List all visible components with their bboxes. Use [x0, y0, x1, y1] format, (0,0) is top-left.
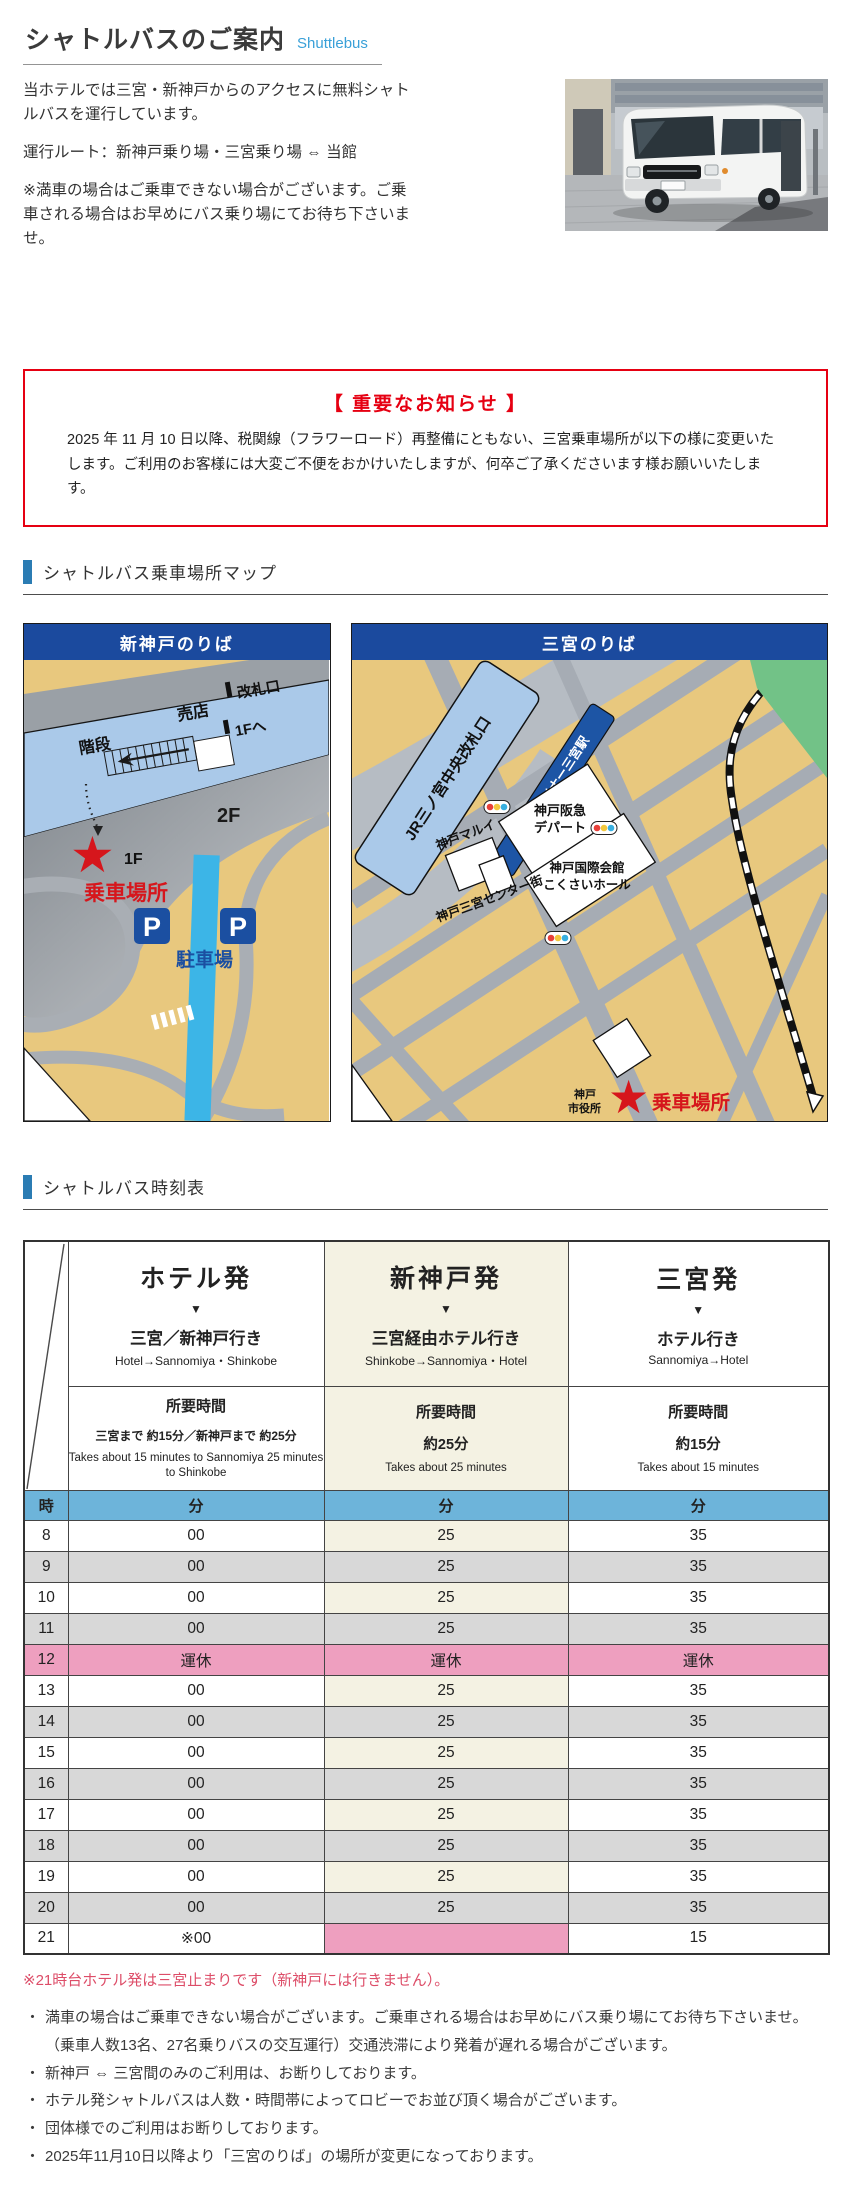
minute-cell: 00: [68, 1706, 324, 1737]
hour-cell: 18: [24, 1830, 68, 1861]
minute-cell: 00: [68, 1799, 324, 1830]
minute-header: 分: [68, 1490, 324, 1520]
minute-cell: 35: [568, 1551, 829, 1582]
floor2-label: 2F: [217, 805, 240, 827]
map-sannomiya-drawing: JR三ノ宮中央改札口 ポートライナー三宮駅 神戸マルイ: [352, 660, 827, 1121]
minute-cell: 35: [568, 1737, 829, 1768]
important-notice: 【 重要なお知らせ 】 2025 年 11 月 10 日以降、税関線（フラワーロ…: [23, 369, 828, 527]
map-shinkobe-drawing: 売店 改札口 1Fへ 階段 2F: [24, 660, 329, 1121]
down-arrow-icon: ▼: [569, 1303, 829, 1317]
route-line: 運行ルート：新神戸乗り場・三宮乗り場 ⇔ 当館: [23, 141, 415, 165]
minute-cell: 15: [568, 1923, 829, 1954]
timetable-row: 17002535: [24, 1799, 829, 1830]
intro-section: 当ホテルでは三宮・新神戸からのアクセスに無料シャトルバスを運行しています。 運行…: [23, 79, 828, 265]
column-header-hotel: ホテル発 ▼ 三宮／新神戸行き Hotel→Sannomiya・Shinkobe: [68, 1241, 324, 1386]
svg-text:神戸国際会館: 神戸国際会館: [549, 860, 624, 875]
section-bar-icon: [23, 1175, 32, 1199]
minute-cell: 運休: [568, 1644, 829, 1675]
minute-cell: [324, 1923, 568, 1954]
minute-cell: 25: [324, 1768, 568, 1799]
section-header-map: シャトルバス乗車場所マップ: [23, 559, 828, 595]
hour-header: 時: [24, 1490, 68, 1520]
timetable-row: 16002535: [24, 1768, 829, 1799]
down-arrow-icon: ▼: [69, 1302, 324, 1316]
hour-cell: 21: [24, 1923, 68, 1954]
minute-cell: 00: [68, 1675, 324, 1706]
notice-body: 2025 年 11 月 10 日以降、税関線（フラワーロード）再整備にともない、…: [59, 428, 792, 502]
map-sannomiya-title: 三宮のりば: [352, 624, 827, 660]
hour-cell: 15: [24, 1737, 68, 1768]
minute-cell: 25: [324, 1706, 568, 1737]
corner-cell: [24, 1241, 68, 1490]
minute-cell: 00: [68, 1582, 324, 1613]
minute-cell: 25: [324, 1892, 568, 1923]
svg-text:神戸阪急: 神戸阪急: [534, 803, 586, 818]
timetable-row: 11002535: [24, 1613, 829, 1644]
section-label: シャトルバス時刻表: [43, 1174, 205, 1199]
boarding-label: 乗車場所: [84, 882, 168, 905]
minute-cell: 35: [568, 1613, 829, 1644]
minute-cell: 00: [68, 1892, 324, 1923]
page-header: シャトルバスのご案内Shuttlebus: [23, 20, 382, 65]
minute-cell: 35: [568, 1830, 829, 1861]
boarding-star-icon: ★: [608, 1071, 649, 1121]
minute-cell: 00: [68, 1768, 324, 1799]
svg-text:デパート: デパート: [534, 820, 586, 835]
hour-cell: 19: [24, 1861, 68, 1892]
timetable-row: 12運休運休運休: [24, 1644, 829, 1675]
minute-cell: 25: [324, 1551, 568, 1582]
timetable-row: 18002535: [24, 1830, 829, 1861]
intro-paragraph: 当ホテルでは三宮・新神戸からのアクセスに無料シャトルバスを運行しています。: [23, 79, 415, 127]
minute-cell: 運休: [324, 1644, 568, 1675]
intro-text: 当ホテルでは三宮・新神戸からのアクセスに無料シャトルバスを運行しています。 運行…: [23, 79, 415, 265]
parking-icon: P: [134, 908, 170, 944]
timetable-row: 9002535: [24, 1551, 829, 1582]
timetable-row: 14002535: [24, 1706, 829, 1737]
timetable-footnote: ※21時台ホテル発は三宮止まりです（新神戸には行きません）。: [23, 1969, 828, 1990]
section-header-timetable: シャトルバス時刻表: [23, 1174, 828, 1210]
floor1-label: 1F: [124, 851, 143, 868]
traffic-signal-icon: [484, 801, 510, 814]
page-title: シャトルバスのご案内: [25, 26, 285, 54]
note-item: 団体様でのご利用はお断りしております。: [23, 2115, 828, 2143]
shuttle-bus-page: シャトルバスのご案内Shuttlebus 当ホテルでは三宮・新神戸からのアクセス…: [0, 0, 842, 2211]
minute-cell: 25: [324, 1799, 568, 1830]
timetable-row: 20002535: [24, 1892, 829, 1923]
minute-cell: 25: [324, 1582, 568, 1613]
minute-header: 分: [568, 1490, 829, 1520]
minute-cell: 25: [324, 1613, 568, 1644]
timetable-row: 13002535: [24, 1675, 829, 1706]
minute-cell: 35: [568, 1861, 829, 1892]
page-title-en: Shuttlebus: [297, 35, 368, 52]
duration-cell-shinkobe: 所要時間 約25分 Takes about 25 minutes: [324, 1386, 568, 1490]
duration-cell-hotel: 所要時間 三宮まで 約15分／新神戸まで 約25分 Takes about 15…: [68, 1386, 324, 1490]
timetable-body: 80025359002535100025351100253512運休運休運休13…: [24, 1520, 829, 1954]
hour-cell: 9: [24, 1551, 68, 1582]
timetable-row: 8002535: [24, 1520, 829, 1551]
notice-title: 【 重要なお知らせ 】: [59, 389, 792, 416]
svg-text:P: P: [229, 912, 247, 942]
column-header-shinkobe: 新神戸発 ▼ 三宮経由ホテル行き Shinkobe→Sannomiya・Hote…: [324, 1241, 568, 1386]
minute-cell: 00: [68, 1520, 324, 1551]
note-item: 2025年11月10日以降より「三宮のりば」の場所が変更になっております。: [23, 2143, 828, 2171]
svg-text:市役所: 市役所: [568, 1101, 601, 1115]
hour-cell: 20: [24, 1892, 68, 1923]
minute-cell: 25: [324, 1520, 568, 1551]
timetable-head-duration: 所要時間 三宮まで 約15分／新神戸まで 約25分 Takes about 15…: [24, 1386, 829, 1490]
minute-cell: 25: [324, 1737, 568, 1768]
hour-cell: 16: [24, 1768, 68, 1799]
minute-cell: 00: [68, 1737, 324, 1768]
duration-cell-sannomiya: 所要時間 約15分 Takes about 15 minutes: [568, 1386, 829, 1490]
timetable-row: 15002535: [24, 1737, 829, 1768]
timetable-head-main: ホテル発 ▼ 三宮／新神戸行き Hotel→Sannomiya・Shinkobe…: [24, 1241, 829, 1386]
timetable-head-minutes: 時 分 分 分: [24, 1490, 829, 1520]
timetable: ホテル発 ▼ 三宮／新神戸行き Hotel→Sannomiya・Shinkobe…: [23, 1240, 830, 1955]
hour-cell: 17: [24, 1799, 68, 1830]
minute-cell: 35: [568, 1768, 829, 1799]
svg-text:P: P: [143, 912, 161, 942]
traffic-signal-icon: [591, 822, 617, 835]
map-sannomiya: 三宮のりば: [351, 623, 828, 1122]
timetable-row: 21※0015: [24, 1923, 829, 1954]
minute-cell: 25: [324, 1830, 568, 1861]
minute-header: 分: [324, 1490, 568, 1520]
full-bus-note: ※満車の場合はご乗車できない場合がございます。ご乗車される場合はお早めにバス乗り…: [23, 179, 415, 251]
minute-cell: 運休: [68, 1644, 324, 1675]
maps-row: 新神戸のりば: [23, 623, 828, 1122]
note-item: 満車の場合はご乗車できない場合がございます。ご乗車される場合はお早めにバス乗り場…: [23, 2004, 828, 2060]
note-item: 新神戸 ⇔ 三宮間のみのご利用は、お断りしております。: [23, 2060, 828, 2088]
hour-cell: 10: [24, 1582, 68, 1613]
minute-cell: 35: [568, 1892, 829, 1923]
minute-cell: 00: [68, 1551, 324, 1582]
minute-cell: 35: [568, 1706, 829, 1737]
minute-cell: 00: [68, 1613, 324, 1644]
boarding-star-icon: ★: [70, 827, 115, 883]
minute-cell: 35: [568, 1582, 829, 1613]
timetable-row: 10002535: [24, 1582, 829, 1613]
map-shinkobe: 新神戸のりば: [23, 623, 331, 1122]
parking-icon: P: [220, 908, 256, 944]
minute-cell: ※00: [68, 1923, 324, 1954]
timetable-row: 19002535: [24, 1861, 829, 1892]
hour-cell: 12: [24, 1644, 68, 1675]
shuttle-bus-photo: [565, 79, 828, 231]
minute-cell: 35: [568, 1799, 829, 1830]
bus-illustration: [623, 105, 807, 213]
minute-cell: 35: [568, 1520, 829, 1551]
minute-cell: 25: [324, 1861, 568, 1892]
boarding-label: 乗車場所: [652, 1091, 731, 1114]
minute-cell: 00: [68, 1830, 324, 1861]
traffic-signal-icon: [545, 932, 571, 945]
section-label: シャトルバス乗車場所マップ: [43, 559, 277, 584]
svg-text:神戸: 神戸: [574, 1087, 596, 1101]
svg-text:こくさいホール: こくさいホール: [543, 878, 631, 892]
hour-cell: 14: [24, 1706, 68, 1737]
section-bar-icon: [23, 560, 32, 584]
notes-list: 満車の場合はご乗車できない場合がございます。ご乗車される場合はお早めにバス乗り場…: [23, 2004, 828, 2171]
map-shinkobe-title: 新神戸のりば: [24, 624, 330, 660]
hour-cell: 11: [24, 1613, 68, 1644]
column-header-sannomiya: 三宮発 ▼ ホテル行き Sannomiya→Hotel: [568, 1241, 829, 1386]
parking-lot-label: 駐車場: [176, 948, 233, 971]
hour-cell: 13: [24, 1675, 68, 1706]
note-item: ホテル発シャトルバスは人数・時間帯によってロビーでお並び頂く場合がございます。: [23, 2087, 828, 2115]
down-arrow-icon: ▼: [325, 1302, 568, 1316]
minute-cell: 25: [324, 1675, 568, 1706]
minute-cell: 35: [568, 1675, 829, 1706]
minute-cell: 00: [68, 1861, 324, 1892]
hour-cell: 8: [24, 1520, 68, 1551]
